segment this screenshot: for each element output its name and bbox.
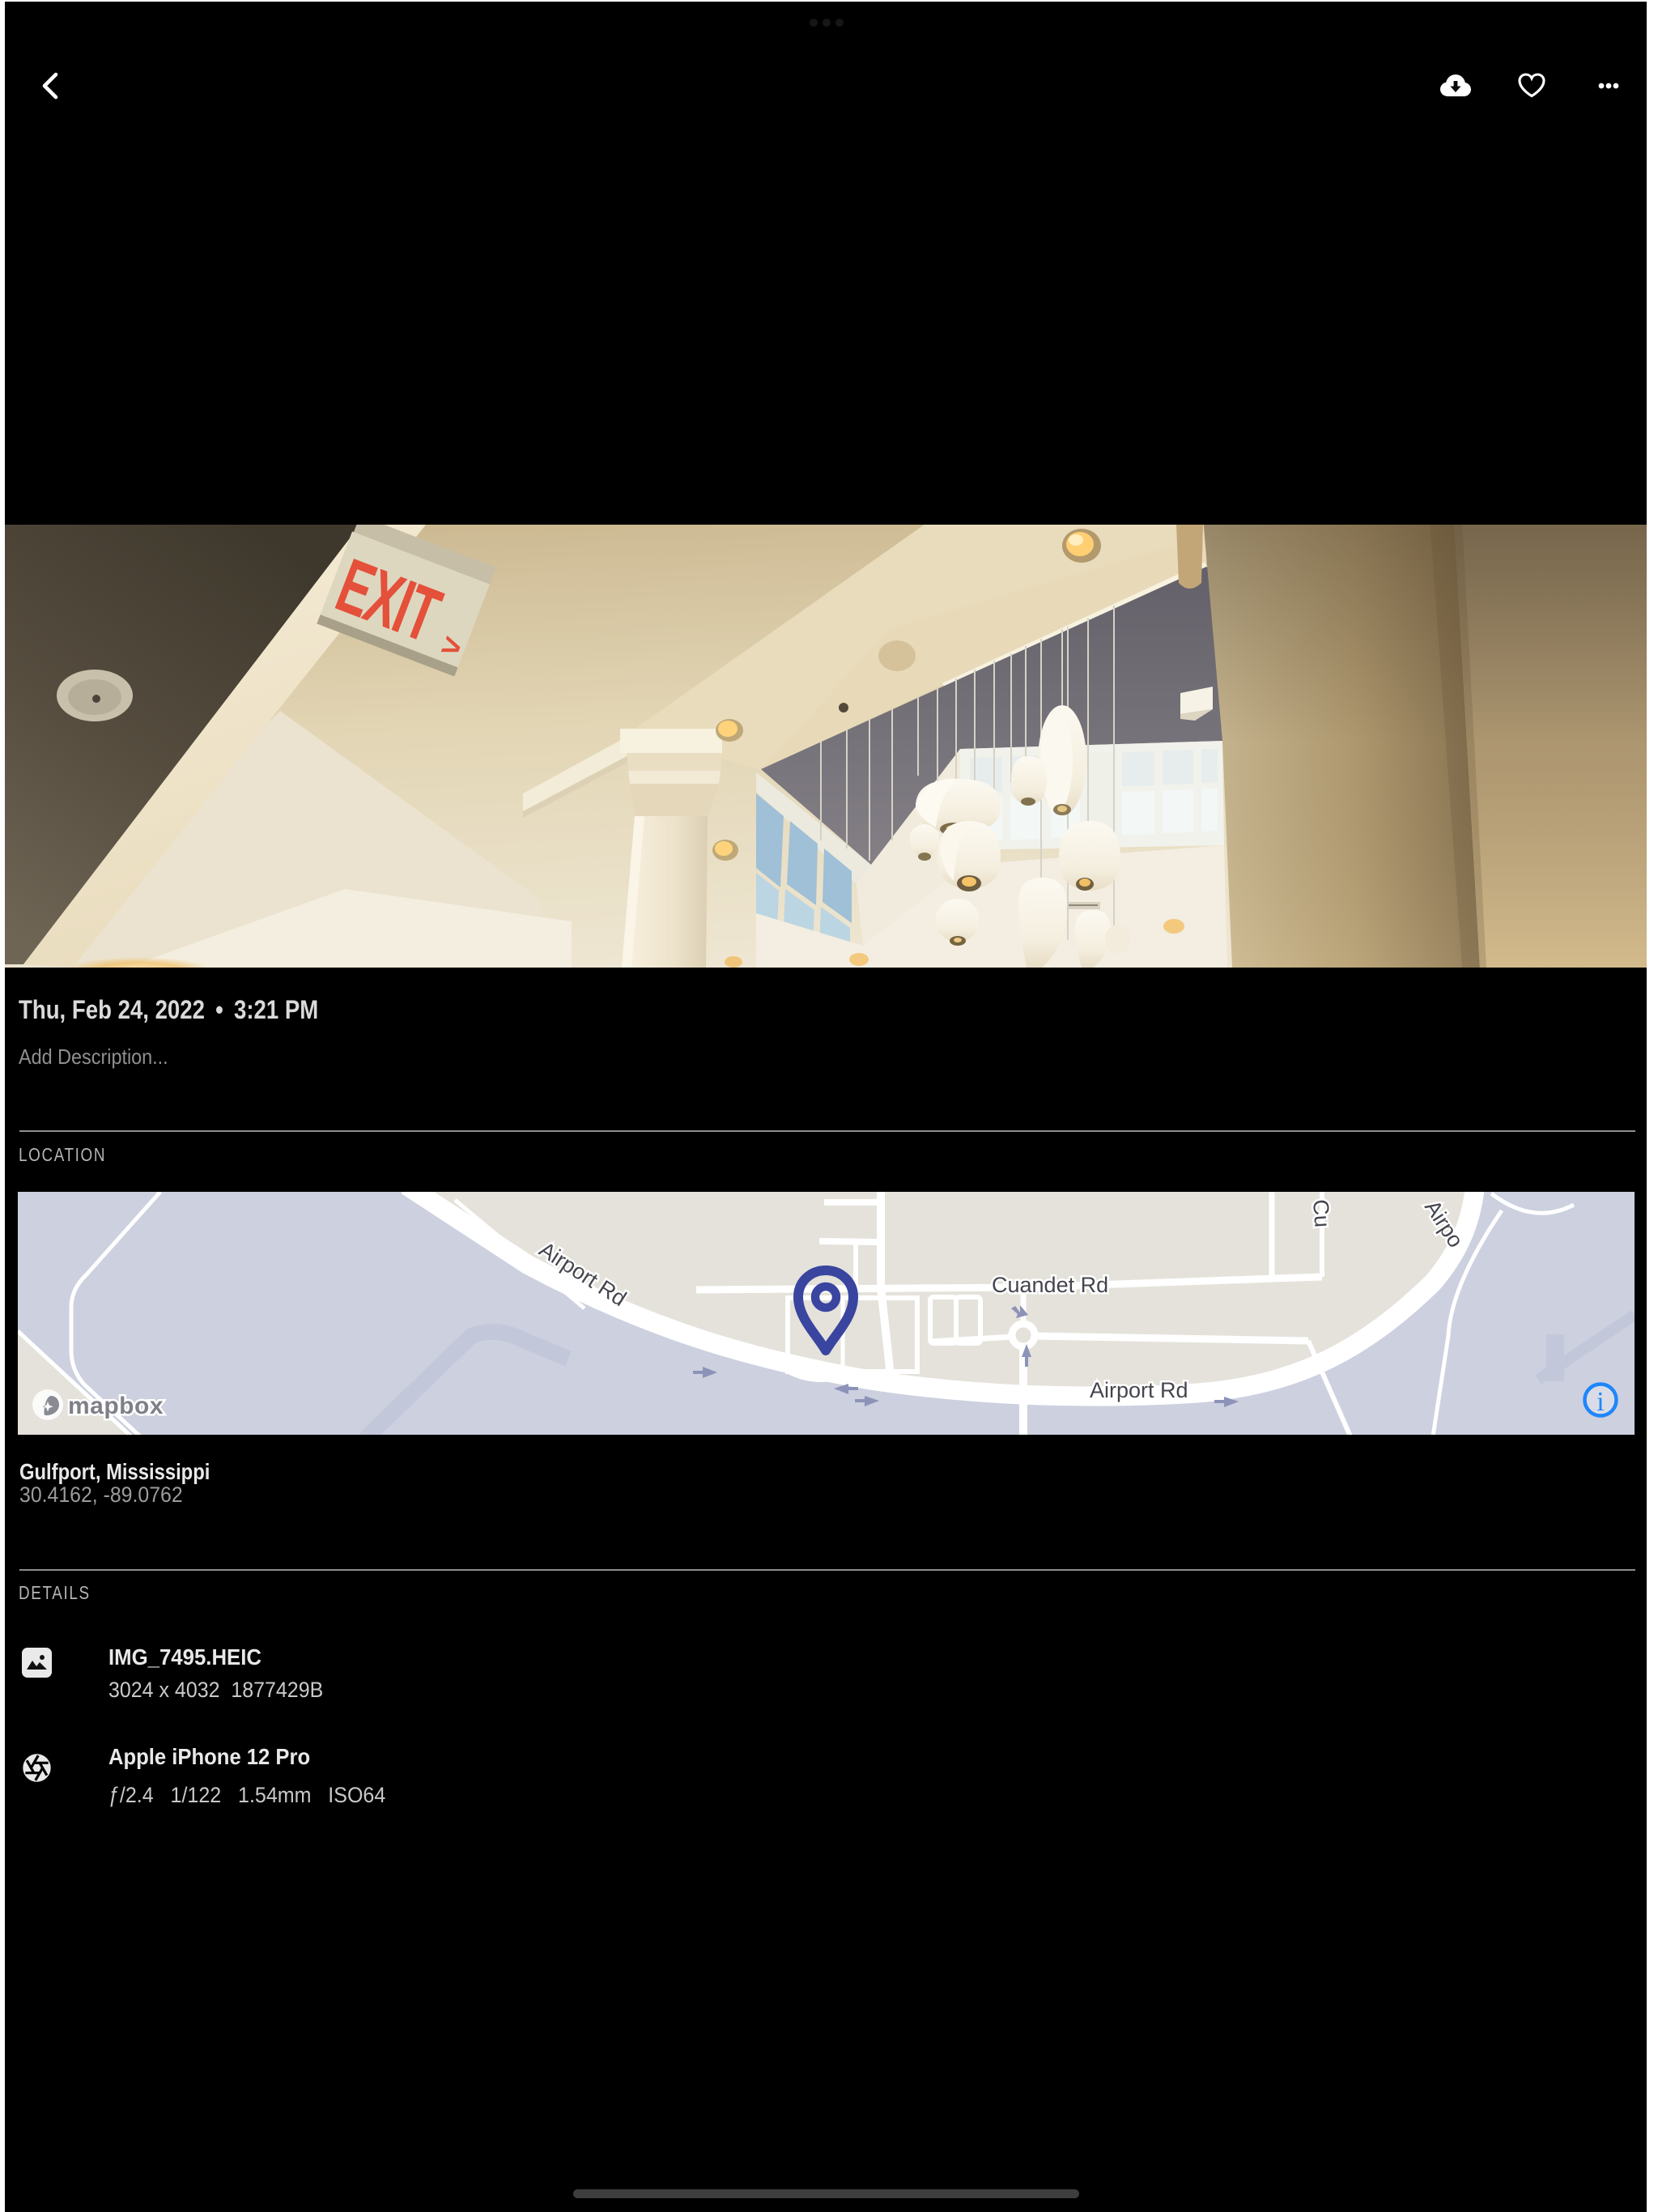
svg-text:Cuandet Rd: Cuandet Rd	[992, 1273, 1108, 1297]
svg-text:Cu: Cu	[1308, 1198, 1334, 1228]
svg-text:mapbox: mapbox	[68, 1393, 164, 1419]
svg-text:i: i	[1596, 1387, 1604, 1417]
svg-text:Airport Rd: Airport Rd	[1090, 1378, 1188, 1402]
